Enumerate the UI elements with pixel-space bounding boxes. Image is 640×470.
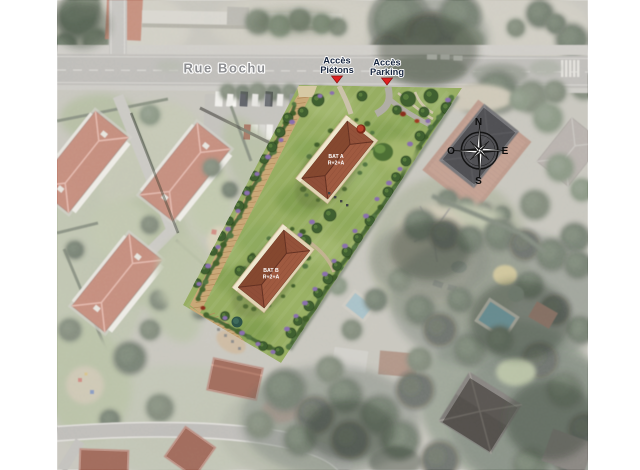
svg-text:R+2+A: R+2+A [328, 161, 345, 167]
svg-text:BAT A: BAT A [328, 154, 344, 160]
svg-text:Accès: Accès [373, 58, 400, 68]
svg-text:E: E [502, 146, 509, 157]
svg-text:Rue Bochu: Rue Bochu [183, 61, 266, 76]
svg-text:R+2+A: R+2+A [263, 275, 280, 281]
svg-text:O: O [447, 146, 455, 157]
svg-text:Piétons: Piétons [320, 65, 354, 75]
svg-text:Parking: Parking [370, 67, 404, 77]
svg-text:Accès: Accès [323, 56, 350, 66]
svg-text:S: S [475, 176, 482, 187]
svg-text:BAT B: BAT B [263, 268, 279, 274]
svg-text:N: N [475, 117, 482, 128]
